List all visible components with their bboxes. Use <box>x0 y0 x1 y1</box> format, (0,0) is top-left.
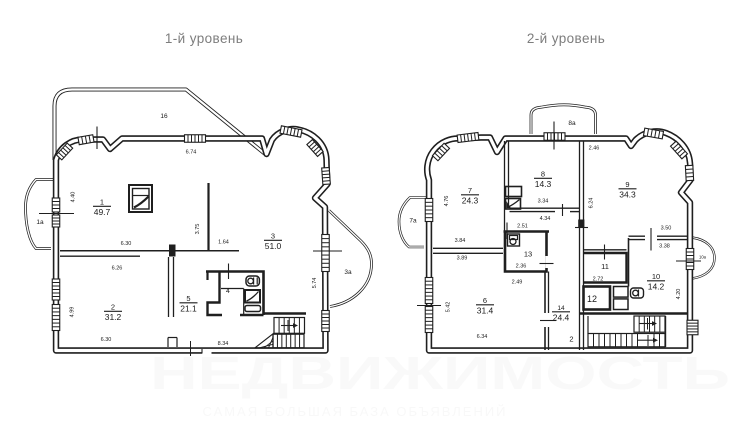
svg-text:5.42: 5.42 <box>446 302 452 313</box>
svg-text:4.76: 4.76 <box>444 196 450 207</box>
svg-text:34.3: 34.3 <box>619 190 636 200</box>
svg-text:8: 8 <box>541 170 545 179</box>
svg-text:10: 10 <box>652 272 660 281</box>
svg-text:6.34: 6.34 <box>477 334 488 340</box>
svg-text:4.99: 4.99 <box>70 307 76 318</box>
svg-text:3.75: 3.75 <box>195 224 201 235</box>
svg-text:3.50: 3.50 <box>661 226 672 232</box>
svg-text:1-й уровень: 1-й уровень <box>165 31 243 46</box>
svg-text:1а: 1а <box>36 219 44 226</box>
svg-text:3: 3 <box>271 232 275 241</box>
svg-text:4.20: 4.20 <box>676 289 682 300</box>
svg-text:8.34: 8.34 <box>218 341 229 347</box>
svg-text:3а: 3а <box>344 269 352 276</box>
svg-text:24.4: 24.4 <box>553 313 570 323</box>
svg-text:5: 5 <box>186 294 190 303</box>
svg-text:5.74: 5.74 <box>312 278 318 289</box>
svg-text:9: 9 <box>625 180 629 189</box>
svg-text:7а: 7а <box>409 218 417 225</box>
svg-text:13: 13 <box>524 250 532 259</box>
svg-text:14.2: 14.2 <box>648 282 665 292</box>
svg-text:21.1: 21.1 <box>180 304 197 314</box>
svg-text:3.38: 3.38 <box>659 244 670 250</box>
svg-text:31.4: 31.4 <box>477 306 494 316</box>
svg-text:12: 12 <box>587 294 597 304</box>
svg-text:2.72: 2.72 <box>593 277 604 283</box>
svg-text:51.0: 51.0 <box>265 241 282 251</box>
svg-text:49.7: 49.7 <box>94 207 111 217</box>
svg-text:2.36: 2.36 <box>516 264 527 270</box>
svg-text:4: 4 <box>226 288 230 295</box>
svg-text:3.34: 3.34 <box>538 199 549 205</box>
svg-text:11: 11 <box>601 262 609 271</box>
svg-text:2.51: 2.51 <box>517 224 528 230</box>
svg-text:3.84: 3.84 <box>455 238 466 244</box>
svg-text:2.49: 2.49 <box>512 280 523 286</box>
svg-text:14: 14 <box>557 305 565 312</box>
svg-text:6.30: 6.30 <box>121 241 132 247</box>
svg-text:2: 2 <box>569 335 573 344</box>
svg-text:1.64: 1.64 <box>218 240 229 246</box>
svg-text:14.3: 14.3 <box>535 179 552 189</box>
svg-text:2: 2 <box>111 303 115 312</box>
svg-text:10а: 10а <box>699 255 707 260</box>
svg-text:4.34: 4.34 <box>540 216 551 222</box>
svg-text:16: 16 <box>160 113 168 120</box>
svg-text:4.40: 4.40 <box>71 192 77 203</box>
svg-text:2-й уровень: 2-й уровень <box>527 31 605 46</box>
svg-text:6.26: 6.26 <box>112 266 123 272</box>
svg-text:2.46: 2.46 <box>589 146 600 152</box>
svg-text:НЕДВИЖИМОСТЬ: НЕДВИЖИМОСТЬ <box>150 347 730 399</box>
svg-text:6: 6 <box>483 296 487 305</box>
svg-text:САМАЯ БОЛЬШАЯ БАЗА ОБЪЯВЛЕНИЙ: САМАЯ БОЛЬШАЯ БАЗА ОБЪЯВЛЕНИЙ <box>203 404 508 419</box>
svg-text:6.74: 6.74 <box>186 150 197 156</box>
svg-text:6.24: 6.24 <box>589 198 595 209</box>
svg-text:8а: 8а <box>568 120 576 127</box>
svg-text:24.3: 24.3 <box>462 196 479 206</box>
svg-text:6.30: 6.30 <box>101 337 112 343</box>
svg-text:7: 7 <box>468 186 472 195</box>
svg-text:3.89: 3.89 <box>457 256 468 262</box>
svg-text:1: 1 <box>100 198 104 207</box>
svg-text:31.2: 31.2 <box>105 312 122 322</box>
